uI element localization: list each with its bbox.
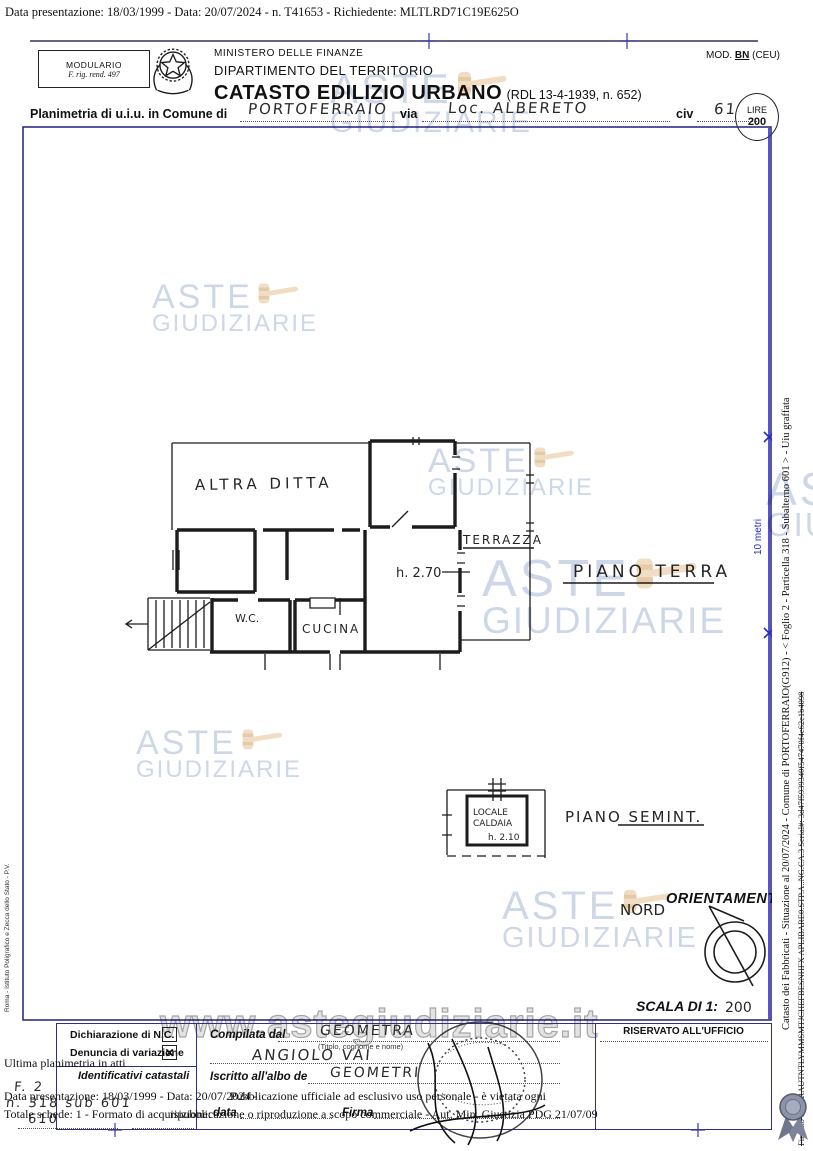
modulario-box: MODULARIO F. rig. rend. 497	[38, 50, 150, 88]
planimetria-label: Planimetria di u.i.u. in Comune di	[30, 107, 227, 121]
drawing-area: 10 metri	[22, 125, 772, 1022]
modulario-label: MODULARIO	[66, 60, 122, 70]
presentation-data-line: Data presentazione: 18/03/1999 - Data: 2…	[5, 5, 519, 20]
modulario-ref: F. rig. rend. 497	[68, 70, 120, 79]
label-caldaia-1: LOCALE	[473, 808, 508, 818]
wc-room	[212, 600, 290, 652]
upper-room	[370, 441, 455, 527]
label-terrazza: TERRAZZA	[462, 533, 543, 547]
civ-dotline	[697, 120, 759, 122]
label-nord: NORD	[620, 901, 665, 919]
ribbon-seal-icon	[773, 1090, 813, 1148]
italy-emblem-icon	[144, 40, 202, 98]
catasto-situation-line: Catasto dei Fabbricati - Situazione al 2…	[781, 78, 792, 1030]
via-value: Loc. ALBERETO	[447, 99, 589, 117]
digital-signature-line: Firmato DS:TRAUTNTLYMMSMTJCHEFBESNHFX AP…	[796, 46, 806, 1146]
cadastral-document-page: Data presentazione: 18/03/1999 - Data: 2…	[0, 0, 813, 1151]
north-compass	[705, 906, 765, 986]
label-piano-terra: PIANO TERRA	[573, 562, 731, 582]
ministry-line-1: MINISTERO DELLE FINANZE	[214, 48, 363, 59]
lire-label: LIRE	[747, 106, 767, 116]
thick-walls	[177, 441, 460, 652]
comune-value: PORTOFERRAIO	[247, 100, 389, 118]
mod-suffix: (CEU)	[752, 50, 780, 61]
civ-value: 61	[713, 100, 738, 118]
overlay-line3b: ripubblicazione o riproduzione a scopo c…	[170, 1107, 598, 1122]
label-altra-ditta: ALTRA DITTA	[195, 474, 333, 494]
label-orientamento: ORIENTAMENTO	[666, 891, 772, 907]
label-cucina: CUCINA	[302, 622, 360, 636]
label-caldaia-height: h. 2.10	[488, 833, 520, 843]
via-label: via	[400, 107, 417, 121]
mod-prefix: MOD.	[706, 50, 732, 61]
label-wc: W.C.	[235, 612, 259, 625]
label-piano-semint: PIANO SEMINT.	[565, 808, 702, 826]
label-room-height: h. 2.70	[396, 566, 441, 581]
register-mark	[108, 1123, 705, 1137]
ministry-line-2: DIPARTIMENTO DEL TERRITORIO	[214, 63, 433, 78]
floor-plan-ground	[126, 437, 714, 670]
label-scala: SCALA DI 1:	[636, 998, 718, 1014]
footer-overlay	[0, 1015, 813, 1151]
via-dotline	[422, 120, 670, 122]
mod-code: BN	[735, 50, 749, 61]
printer-imprint: Roma - Istituto Poligrafico e Zecca dell…	[4, 822, 11, 1012]
civ-label: civ	[676, 107, 693, 121]
label-caldaia-2: CALDAIA	[473, 819, 513, 829]
mod-code-row: MOD. BN (CEU)	[706, 50, 780, 61]
ultima-line: Ultima planimetria in atti	[4, 1056, 126, 1071]
comune-dotline	[240, 120, 394, 122]
label-scala-value: 200	[725, 1000, 752, 1016]
overlay-line2b: Pubblicazione ufficiale ad esclusivo uso…	[230, 1089, 546, 1104]
overlay-line2a: Data presentazione: 18/03/1999 - Data: 2…	[4, 1089, 257, 1104]
scalebar-label: 10 metri	[753, 519, 764, 555]
